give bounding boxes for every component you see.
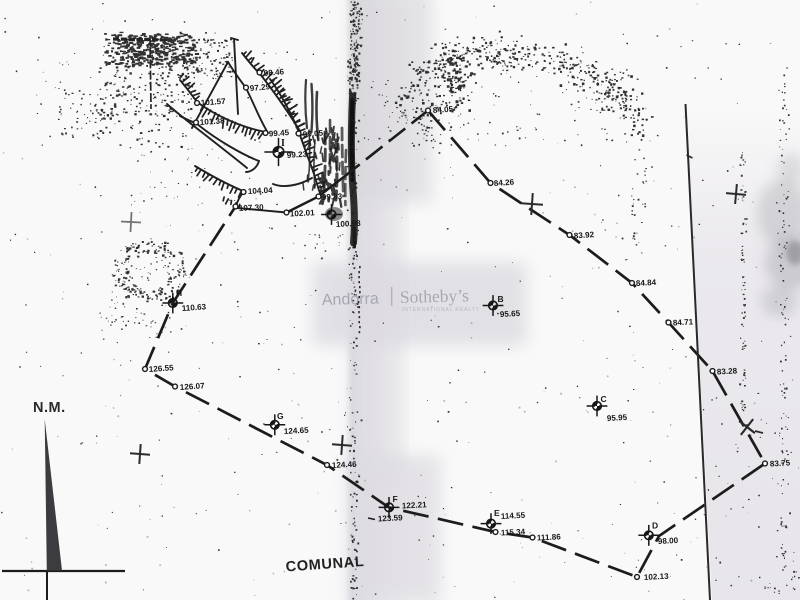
svg-text:101.38: 101.38 [200, 116, 226, 127]
svg-text:110.63: 110.63 [182, 302, 207, 313]
svg-text:114.55: 114.55 [501, 511, 526, 521]
svg-text:Sotheby’s: Sotheby’s [400, 285, 470, 307]
svg-text:98.46: 98.46 [263, 67, 284, 78]
svg-text:83.28: 83.28 [717, 366, 738, 376]
svg-text:104.04: 104.04 [248, 186, 274, 196]
svg-text:111.86: 111.86 [537, 532, 562, 542]
svg-text:INTERNATIONAL REALTY: INTERNATIONAL REALTY [402, 307, 480, 313]
svg-text:E: E [494, 508, 500, 518]
svg-text:99.05: 99.05 [303, 129, 324, 139]
svg-text:84.71: 84.71 [673, 317, 694, 327]
svg-text:97.29: 97.29 [249, 82, 270, 93]
svg-text:83.92: 83.92 [574, 230, 595, 240]
svg-text:G: G [277, 411, 284, 421]
svg-text:99.83: 99.83 [322, 192, 343, 202]
svg-text:102.01: 102.01 [290, 208, 316, 218]
svg-text:Andorra: Andorra [322, 291, 379, 309]
svg-text:124.46: 124.46 [332, 460, 358, 470]
svg-text:100.98: 100.98 [336, 219, 362, 229]
svg-text:126.07: 126.07 [180, 381, 206, 392]
svg-text:B: B [498, 294, 504, 304]
svg-text:84.26: 84.26 [494, 178, 515, 188]
svg-text:83.75: 83.75 [770, 458, 791, 468]
svg-text:122.21: 122.21 [402, 500, 428, 510]
svg-text:84.05: 84.05 [433, 105, 454, 115]
svg-text:I: I [281, 138, 285, 149]
svg-text:126.55: 126.55 [149, 363, 175, 374]
svg-text:101.57: 101.57 [201, 97, 227, 108]
svg-text:N.M.: N.M. [33, 400, 66, 416]
svg-text:95.95: 95.95 [607, 413, 628, 423]
svg-text:123.59: 123.59 [378, 513, 404, 523]
svg-text:107.30: 107.30 [239, 203, 265, 213]
svg-text:99.45: 99.45 [269, 128, 290, 138]
svg-text:84.84: 84.84 [636, 278, 657, 288]
svg-text:115.34: 115.34 [501, 527, 526, 537]
svg-text:95.65: 95.65 [500, 309, 521, 319]
svg-text:124.65: 124.65 [284, 426, 310, 436]
svg-text:102.13: 102.13 [644, 572, 670, 582]
svg-text:99.23: 99.23 [287, 150, 308, 160]
svg-text:98.00: 98.00 [658, 536, 679, 546]
svg-text:C: C [601, 394, 607, 404]
svg-text:D: D [652, 521, 658, 531]
svg-text:F: F [393, 494, 398, 504]
svg-text:H: H [176, 288, 182, 298]
